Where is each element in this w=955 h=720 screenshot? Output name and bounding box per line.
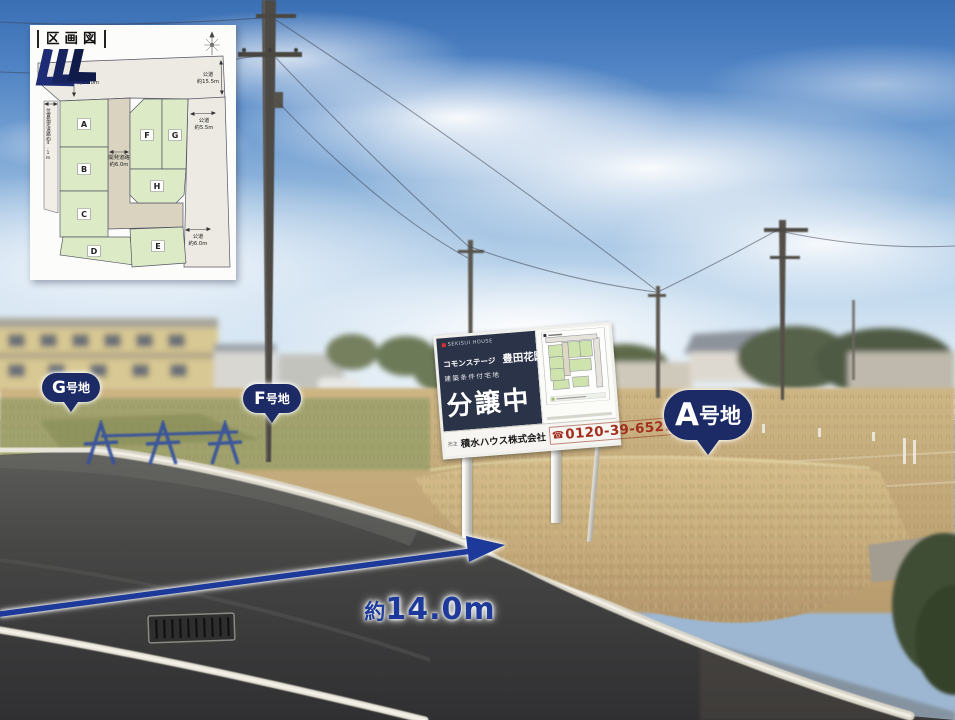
billboard-main-panel: SEKISUI HOUSE コモンステージ 豊田花園 建築条件付宅地 分譲中 — [436, 331, 542, 432]
svg-text:約15.5m: 約15.5m — [197, 77, 219, 85]
lot-suffix: 号地 — [66, 379, 90, 396]
phone-icon: ☎ — [551, 429, 564, 441]
lot-suffix: 号地 — [699, 400, 741, 430]
svg-text:位置指定道路約4.1m: 位置指定道路約4.1m — [45, 107, 51, 161]
svg-text:G: G — [172, 131, 179, 140]
lot-letter: G — [52, 378, 66, 398]
svg-text:E: E — [155, 242, 160, 251]
svg-text:C: C — [81, 210, 87, 219]
billboard-post-left — [462, 458, 472, 538]
svg-text:開発道路: 開発道路 — [108, 153, 130, 161]
sale-billboard: SEKISUI HOUSE コモンステージ 豊田花園 建築条件付宅地 分譲中 — [433, 322, 621, 460]
svg-text:約5.5m: 約5.5m — [195, 123, 214, 131]
road-width-label: 約14.0m — [330, 592, 530, 627]
north-compass-icon — [204, 31, 219, 55]
company-name: 積水ハウス株式会社 — [460, 429, 546, 450]
billboard-body: SEKISUI HOUSE コモンステージ 豊田花園 建築条件付宅地 分譲中 — [436, 325, 616, 432]
billboard-minimap — [535, 325, 617, 424]
svg-text:F: F — [144, 131, 149, 140]
company-logo-chevrons — [34, 49, 96, 115]
lot-bubble-g: G号地 — [42, 373, 100, 402]
lot-letter: F — [254, 389, 266, 409]
approx-prefix: 約 — [364, 600, 385, 624]
sale-status-text: 分譲中 — [445, 379, 536, 423]
lot-bubble-a: A号地 — [664, 390, 752, 440]
seller-label: 売主 — [447, 440, 458, 448]
site-photo: SEKISUI HOUSE コモンステージ 豊田花園 建築条件付宅地 分譲中 — [0, 0, 955, 720]
svg-text:公道: 公道 — [193, 232, 204, 240]
brand-text: SEKISUI HOUSE — [448, 338, 494, 348]
width-value: 14.0m — [385, 592, 495, 627]
billboard-post-right — [551, 449, 561, 523]
svg-text:A: A — [81, 120, 88, 129]
svg-text:H: H — [154, 182, 161, 191]
lot-suffix: 号地 — [266, 390, 290, 407]
svg-text:B: B — [81, 165, 87, 174]
brand-logo-icon — [442, 343, 446, 347]
lot-letter: A — [675, 397, 699, 433]
svg-text:D: D — [91, 247, 98, 256]
svg-text:公道: 公道 — [203, 70, 214, 78]
lot-bubble-f: F号地 — [243, 384, 301, 413]
svg-text:公道: 公道 — [199, 116, 210, 124]
lot-map-title: 区画図 — [37, 30, 106, 48]
svg-text:約6.0m: 約6.0m — [110, 160, 129, 168]
series-name: コモンステージ — [443, 356, 496, 369]
svg-text:約6.0m: 約6.0m — [189, 239, 208, 247]
minimap-drawing — [538, 327, 613, 405]
lot-map-panel: A B C D E F G H 公道 約14.0m 公道 約15.5m 公道 約… — [30, 25, 236, 280]
